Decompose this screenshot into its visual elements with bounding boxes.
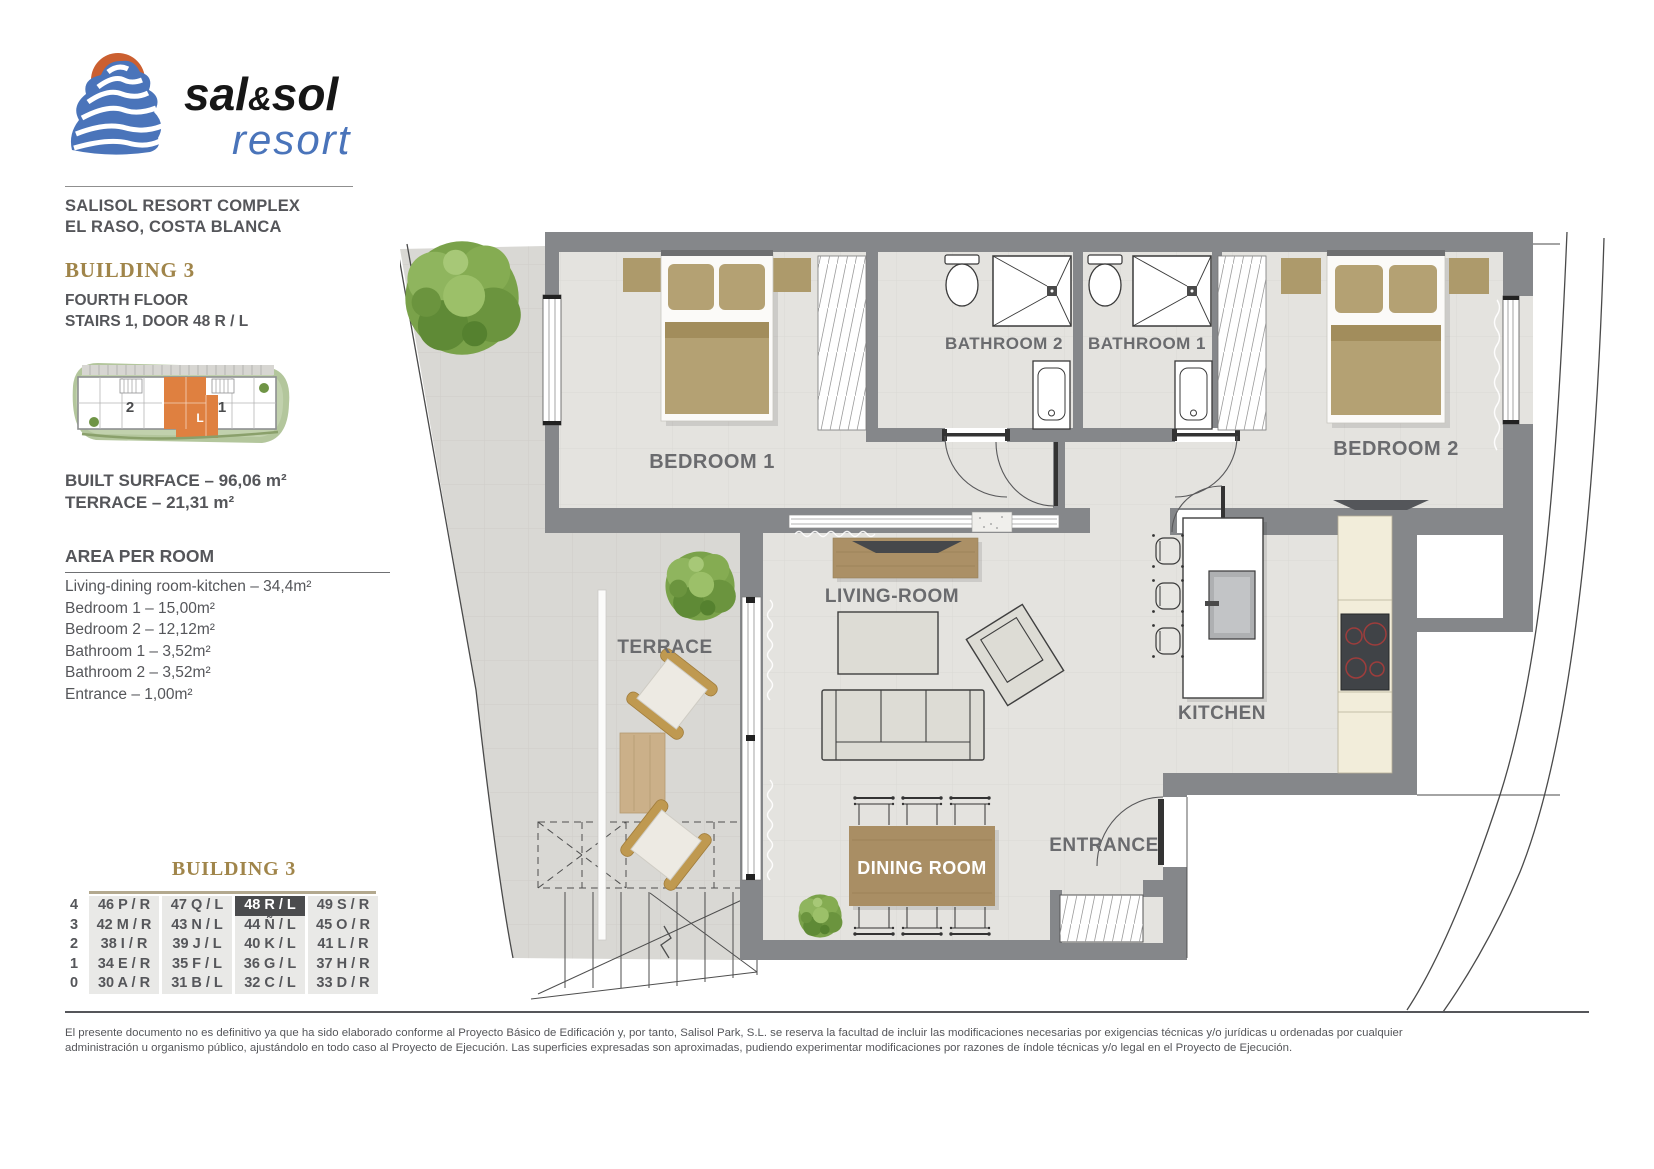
footer-divider bbox=[65, 1011, 1589, 1013]
bush bbox=[798, 894, 842, 937]
unit-cell-highlighted: 48 R / L bbox=[235, 896, 305, 916]
disclaimer: El presente documento no es definitivo y… bbox=[65, 1026, 1590, 1057]
unit-cell: 49 S / R bbox=[308, 896, 378, 916]
wardrobe-bedroom1 bbox=[818, 256, 866, 430]
surface-info: BUILT SURFACE – 96,06 m² TERRACE – 21,31… bbox=[65, 470, 287, 514]
unit-cell: 47 Q / L bbox=[162, 896, 232, 916]
unit-cell: 42 M / R bbox=[89, 916, 159, 936]
floor-plan: BEDROOM 1 BATHROOM 2 BATHROOM 1 BEDROOM … bbox=[400, 225, 1654, 1015]
window-bedroom2 bbox=[1503, 296, 1519, 424]
logo-waves-icon bbox=[71, 61, 162, 155]
sofa bbox=[822, 690, 984, 760]
tree bbox=[665, 551, 735, 620]
terrace-surface-label: TERRACE – 21,31 m² bbox=[65, 492, 287, 514]
unit-cell: 38 I / R bbox=[89, 935, 159, 955]
window-bedroom1 bbox=[543, 295, 561, 425]
label-bathroom2: BATHROOM 2 bbox=[945, 334, 1063, 353]
unit-cell: 44 Ñ / L bbox=[235, 916, 305, 936]
building-title: BUILDING 3 bbox=[65, 258, 195, 283]
table-row: 4 46 P / R 47 Q / L 48 R / L 49 S / R bbox=[62, 896, 378, 916]
table-row: 1 34 E / R 35 F / L 36 G / L 37 H / R bbox=[62, 955, 378, 975]
coffee-table bbox=[838, 612, 938, 674]
unit-cell: 43 N / L bbox=[162, 916, 232, 936]
table-row: 2 38 I / R 39 J / L 40 K / L 41 L / R bbox=[62, 935, 378, 955]
unit-cell: 35 F / L bbox=[162, 955, 232, 975]
floor-number: 0 bbox=[62, 974, 86, 994]
table-row: 3 42 M / R 43 N / L 44 Ñ / L 45 O / R bbox=[62, 916, 378, 936]
unit-cell: 41 L / R bbox=[308, 935, 378, 955]
floor-label: FOURTH FLOOR bbox=[65, 290, 248, 311]
stair-2-label: 2 bbox=[126, 399, 134, 416]
list-item: Entrance – 1,00m² bbox=[65, 684, 311, 706]
entrance-closet bbox=[1060, 895, 1143, 942]
area-per-room-title: AREA PER ROOM bbox=[65, 546, 390, 573]
floor-number: 4 bbox=[62, 896, 86, 916]
floor-number: 1 bbox=[62, 955, 86, 975]
unit-cell: 36 G / L bbox=[235, 955, 305, 975]
unit-cell: 46 P / R bbox=[89, 896, 159, 916]
built-surface-label: BUILT SURFACE – 96,06 m² bbox=[65, 470, 287, 492]
label-dining: DINING ROOM bbox=[857, 858, 987, 878]
floor-info: FOURTH FLOOR STAIRS 1, DOOR 48 R / L bbox=[65, 290, 248, 332]
complex-name: SALISOL RESORT COMPLEX bbox=[65, 196, 300, 217]
table-row: 0 30 A / R 31 B / L 32 C / L 33 D / R bbox=[62, 974, 378, 994]
door-label: STAIRS 1, DOOR 48 R / L bbox=[65, 311, 248, 332]
kitchen-island bbox=[1183, 518, 1267, 702]
terrace-slider bbox=[742, 597, 761, 880]
tv-console bbox=[833, 538, 982, 582]
unit-cell: 40 K / L bbox=[235, 935, 305, 955]
unit-cell: 30 A / R bbox=[89, 974, 159, 994]
stair-core-2-icon bbox=[120, 379, 142, 393]
unit-cell: 39 J / L bbox=[162, 935, 232, 955]
list-item: Living-dining room-kitchen – 34,4m² bbox=[65, 576, 311, 598]
units-table-title: BUILDING 3 bbox=[90, 858, 378, 881]
complex-title: SALISOL RESORT COMPLEX EL RASO, COSTA BL… bbox=[65, 196, 300, 238]
area-per-room-list: Living-dining room-kitchen – 34,4m² Bedr… bbox=[65, 576, 311, 705]
building-locator-map: 2 1 L bbox=[66, 350, 296, 454]
label-living: LIVING-ROOM bbox=[825, 586, 959, 607]
unit-cell: 31 B / L bbox=[162, 974, 232, 994]
list-item: Bathroom 2 – 3,52m² bbox=[65, 662, 311, 684]
floor-number: 2 bbox=[62, 935, 86, 955]
salsol-logo: sal&sol resort bbox=[62, 44, 372, 174]
label-bedroom1: BEDROOM 1 bbox=[649, 451, 775, 473]
floor-number: 3 bbox=[62, 916, 86, 936]
unit-cell: 37 H / R bbox=[308, 955, 378, 975]
logo-divider bbox=[65, 186, 353, 187]
list-item: Bedroom 1 – 15,00m² bbox=[65, 598, 311, 620]
unit-cell: 34 E / R bbox=[89, 955, 159, 975]
label-entrance: ENTRANCE bbox=[1049, 835, 1159, 856]
units-table-topline bbox=[89, 891, 376, 894]
label-bathroom1: BATHROOM 1 bbox=[1088, 334, 1206, 353]
terrace-railing bbox=[598, 590, 606, 940]
parking-strip bbox=[82, 365, 274, 375]
disclaimer-line: El presente documento no es definitivo y… bbox=[65, 1026, 1590, 1041]
unit-cell: 45 O / R bbox=[308, 916, 378, 936]
complex-location: EL RASO, COSTA BLANCA bbox=[65, 217, 300, 238]
unit-cell: 32 C / L bbox=[235, 974, 305, 994]
list-item: Bathroom 1 – 3,52m² bbox=[65, 641, 311, 663]
logo-wordmark: sal&sol bbox=[184, 68, 339, 120]
brochure-page: sal&sol resort SALISOL RESORT COMPLEX EL… bbox=[0, 0, 1654, 1169]
stair-1-label: 1 bbox=[218, 399, 226, 416]
wardrobe-bedroom2 bbox=[1218, 256, 1266, 430]
unit-cell: 33 D / R bbox=[308, 974, 378, 994]
unit-letter-label: L bbox=[196, 411, 203, 425]
label-terrace: TERRACE bbox=[617, 637, 712, 658]
tree bbox=[405, 241, 521, 354]
label-kitchen: KITCHEN bbox=[1178, 703, 1266, 724]
logo-subtitle: resort bbox=[232, 116, 352, 163]
stair-core-1-icon bbox=[212, 379, 234, 393]
list-item: Bedroom 2 – 12,12m² bbox=[65, 619, 311, 641]
kitchen-counter bbox=[1338, 516, 1392, 773]
label-bedroom2: BEDROOM 2 bbox=[1333, 438, 1459, 460]
disclaimer-line: administración u organismo público, ajus… bbox=[65, 1041, 1590, 1056]
units-table: 4 46 P / R 47 Q / L 48 R / L 49 S / R 3 … bbox=[62, 896, 378, 994]
